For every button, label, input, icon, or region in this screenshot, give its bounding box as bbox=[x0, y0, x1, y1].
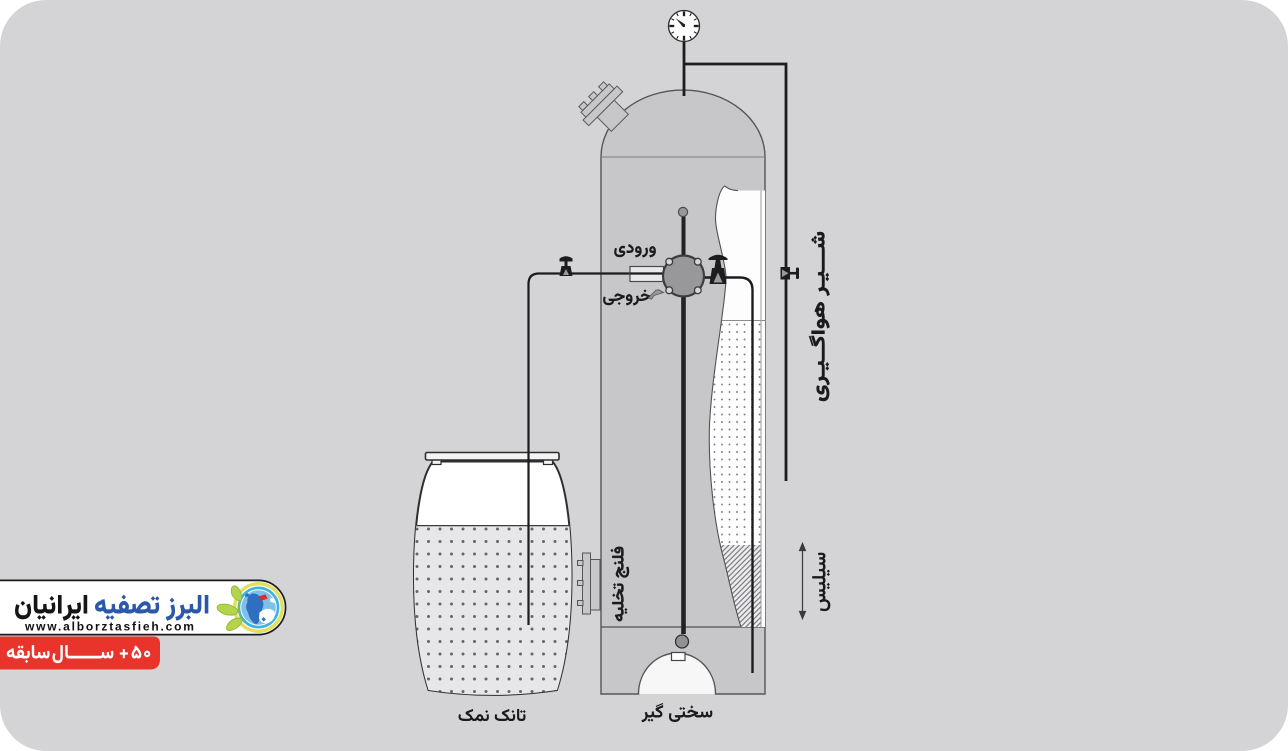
svg-text:www.alborztasfieh.com: www.alborztasfieh.com bbox=[24, 620, 196, 634]
